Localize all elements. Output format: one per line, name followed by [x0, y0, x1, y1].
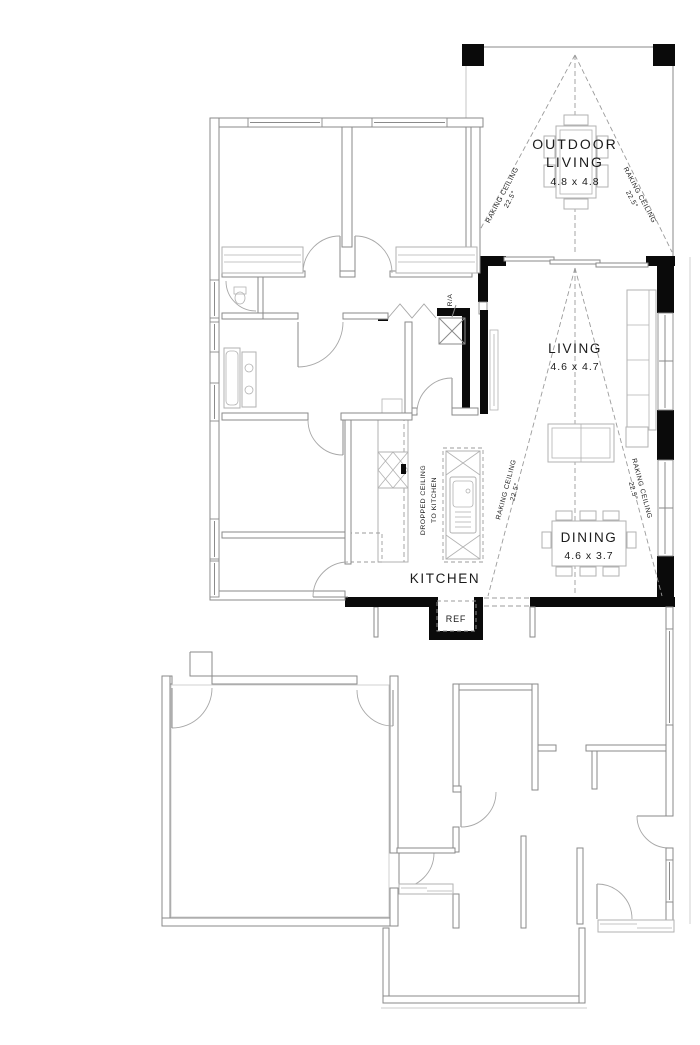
floor-plan-page: OUTDOOR LIVING 4.8 x 4.8 RAKING CEILING … [0, 0, 700, 1045]
kitchen-label: KITCHEN [410, 571, 480, 586]
cooktop [378, 452, 408, 488]
stacker-door [504, 257, 648, 267]
sink [450, 477, 476, 533]
wc [222, 277, 263, 319]
raking-ceiling-note-outdoor-right: RAKING CEILING 22.5° [614, 166, 657, 228]
bifold-door [388, 304, 436, 318]
lower-wing [381, 607, 674, 1008]
sofa [627, 290, 656, 430]
wardrobe-bed2 [396, 247, 477, 273]
post-left [462, 44, 484, 66]
outdoor-living-dims: 4.8 x 4.8 [550, 176, 599, 188]
raking-ceiling-note-living-right: RAKING CEILING 22.5° [621, 458, 653, 522]
living-east-wall [657, 256, 674, 607]
svg-text:DROPPED CEILING: DROPPED CEILING [420, 465, 427, 535]
wardrobe-bed1 [222, 247, 303, 273]
raking-ceiling-note-outdoor-left: RAKING CEILING 22.5° [485, 166, 528, 228]
bottom-robe [598, 920, 674, 932]
side-table [626, 427, 648, 447]
dining-dims: 4.6 x 3.7 [564, 550, 613, 562]
wing-east-wall [637, 607, 673, 926]
raking-ceiling-note-living-left: RAKING CEILING 22.5° [495, 459, 527, 523]
outdoor-living-area: OUTDOOR LIVING 4.8 x 4.8 RAKING CEILING … [462, 44, 675, 256]
outdoor-living-label-1: OUTDOOR [532, 136, 618, 152]
porch [381, 928, 587, 1008]
dining-label: DINING [561, 530, 618, 545]
dropped-ceiling-note: DROPPED CEILING [420, 465, 427, 535]
svg-text:R/A: R/A [447, 294, 454, 307]
living-label: LIVING [548, 341, 602, 356]
return-air-grille [439, 318, 465, 344]
post-right [653, 44, 675, 66]
corridor-robe [399, 884, 453, 894]
fridge-label: REF [446, 614, 466, 624]
living-dims: 4.6 x 4.7 [550, 361, 599, 373]
floor-plan-drawing: OUTDOOR LIVING 4.8 x 4.8 RAKING CEILING … [0, 0, 700, 1045]
outdoor-living-label-2: LIVING [546, 154, 604, 170]
bathroom [224, 313, 412, 420]
return-air-label: R/A [447, 294, 454, 307]
dropped-ceiling-note-2: TO KITCHEN [431, 477, 438, 523]
coffee-table [548, 424, 614, 462]
fridge-nook: REF [429, 597, 483, 640]
svg-text:TO KITCHEN: TO KITCHEN [431, 477, 438, 523]
bedroom-wing [210, 118, 483, 600]
kitchen-island [443, 448, 483, 562]
kitchen-area: REF [345, 399, 483, 640]
garage [162, 652, 434, 926]
